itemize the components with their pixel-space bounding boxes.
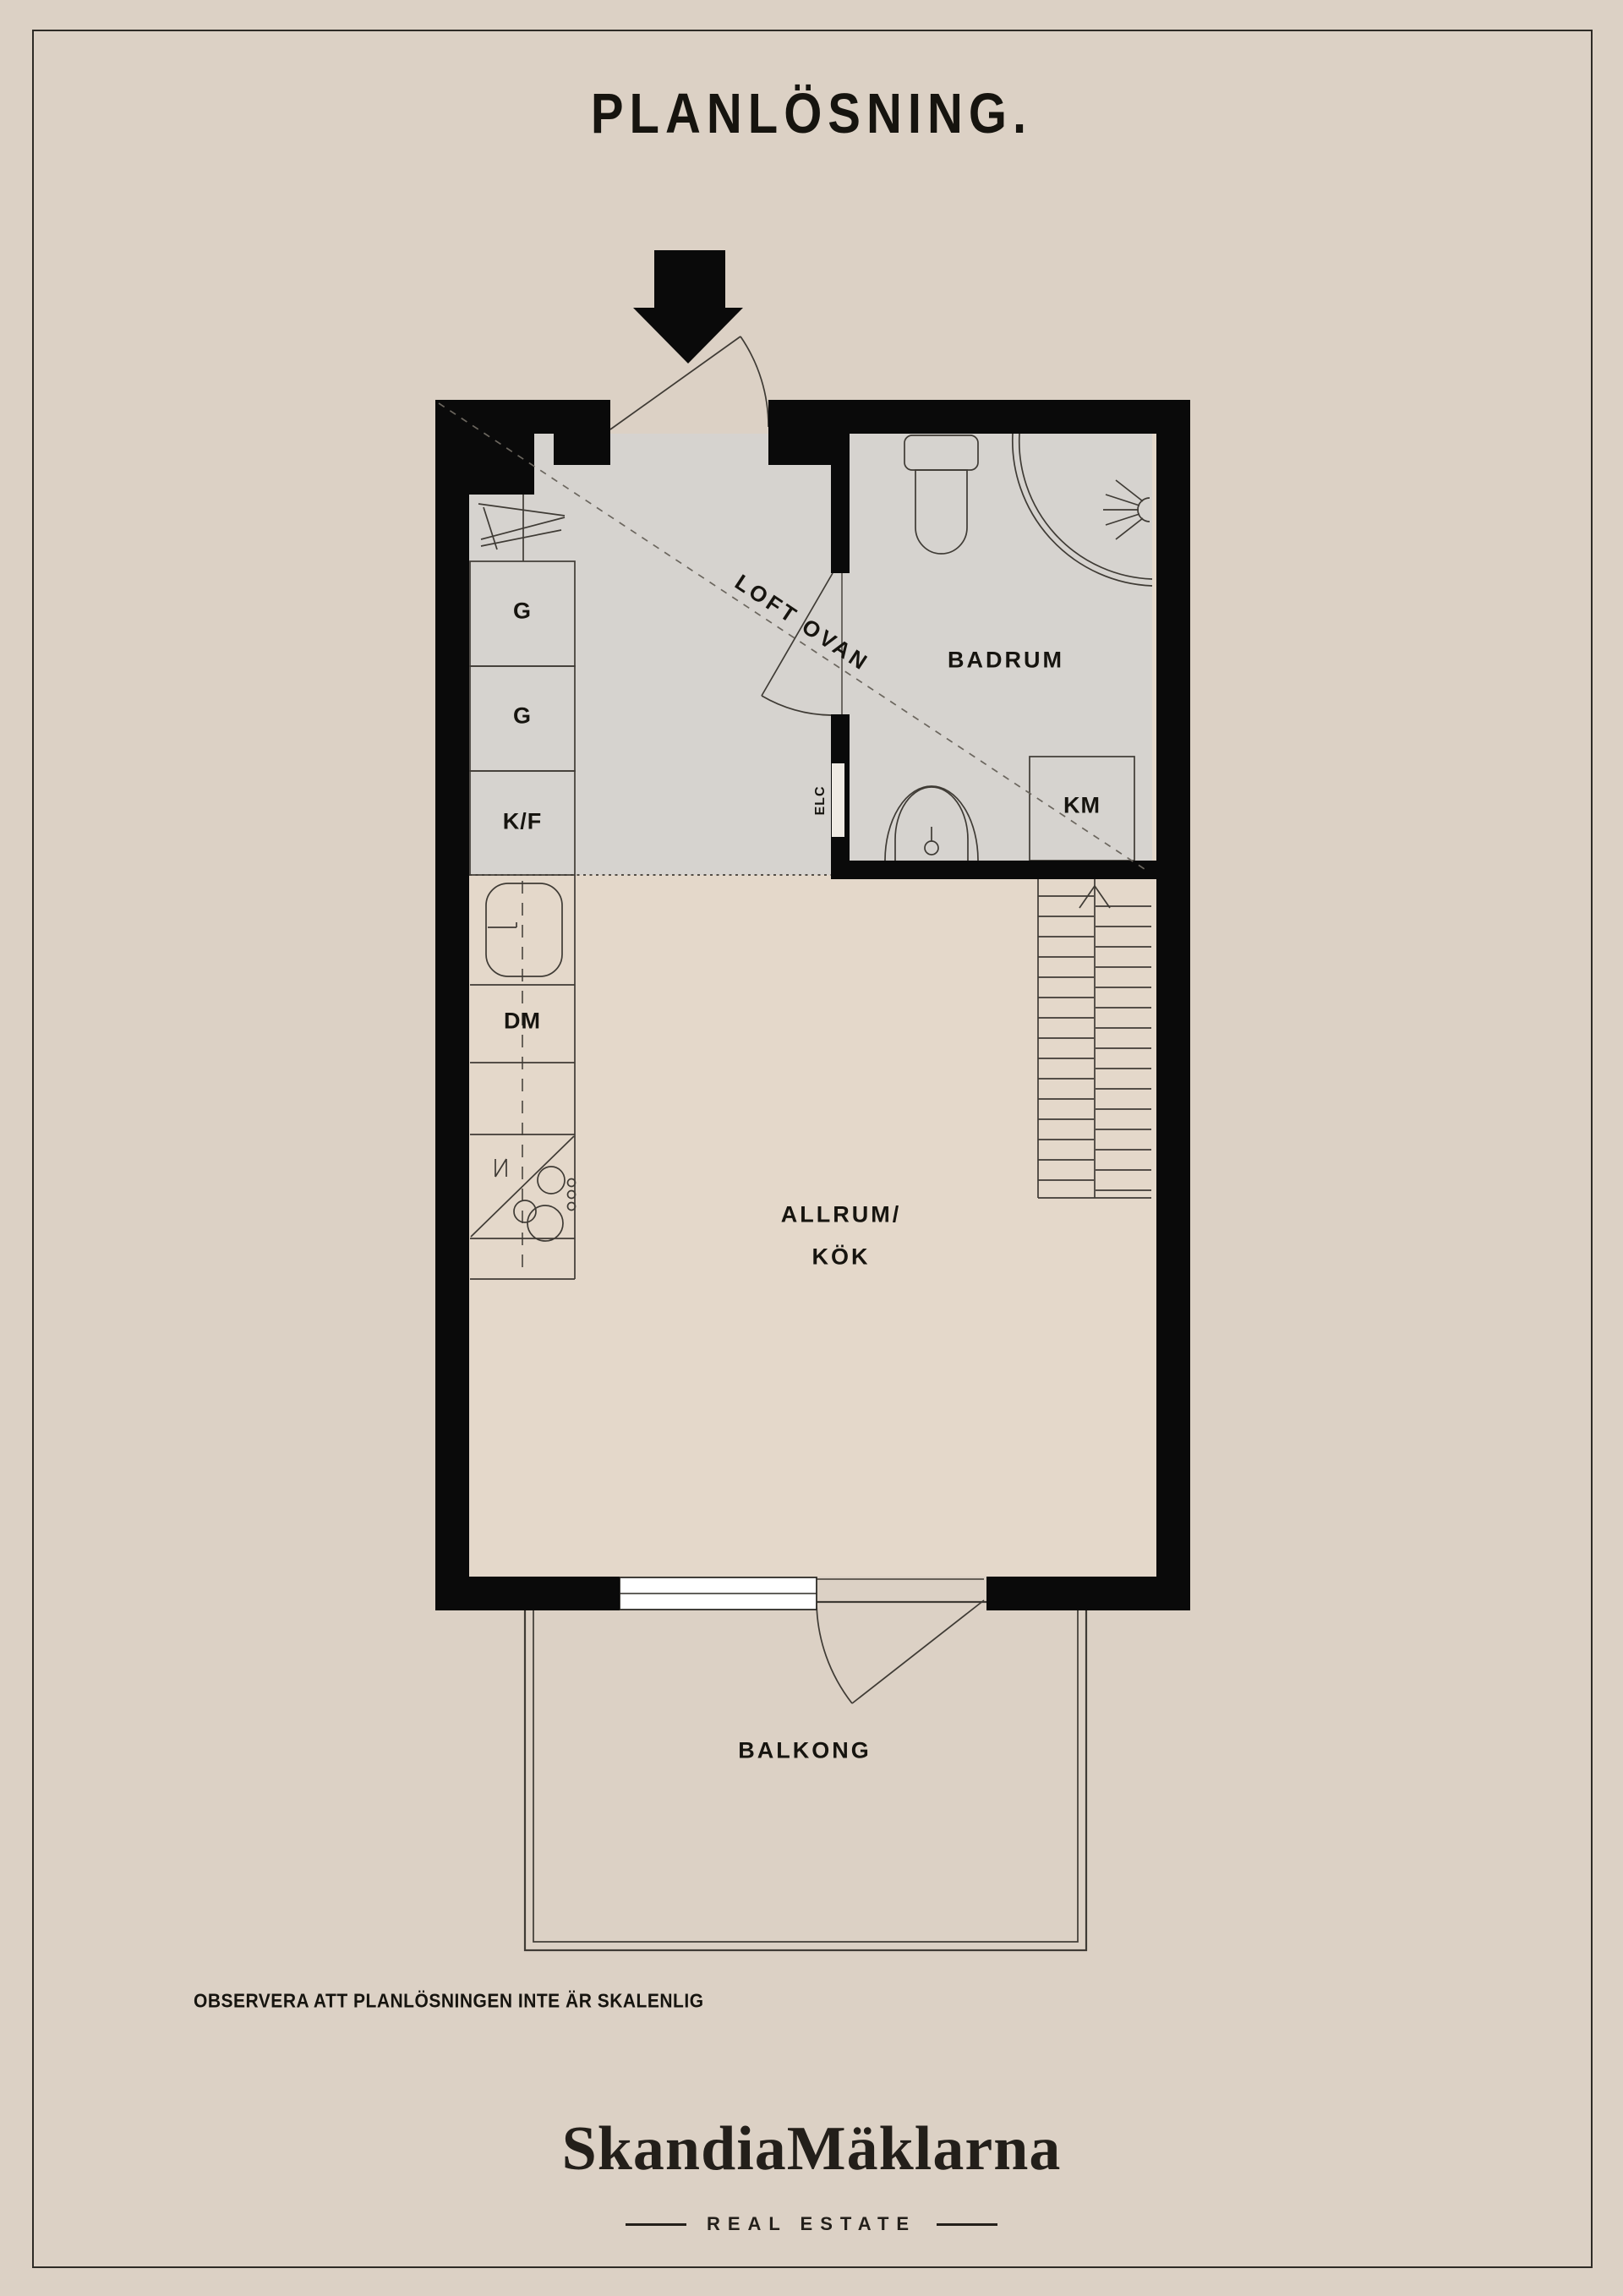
electrical-panel [832,763,844,837]
room-label-living-1: ALLRUM/ [781,1202,901,1228]
annotation-layer [0,0,1623,2296]
room-label-living-2: KÖK [812,1244,871,1271]
page: PLANLÖSNING. [0,0,1623,2296]
room-label-bathroom: BADRUM [948,648,1064,674]
dishwasher-label: DM [504,1009,541,1035]
entrance-arrow-icon [633,250,743,364]
washing-machine-label: KM [1063,793,1101,819]
room-label-balcony: BALKONG [738,1738,872,1764]
cabinet-label-1: G [513,599,532,625]
electrical-label: ELC [813,786,828,816]
fridge-freezer-label: K/F [503,809,543,835]
cabinet-label-2: G [513,703,532,730]
loft-boundary-line [439,403,1150,872]
